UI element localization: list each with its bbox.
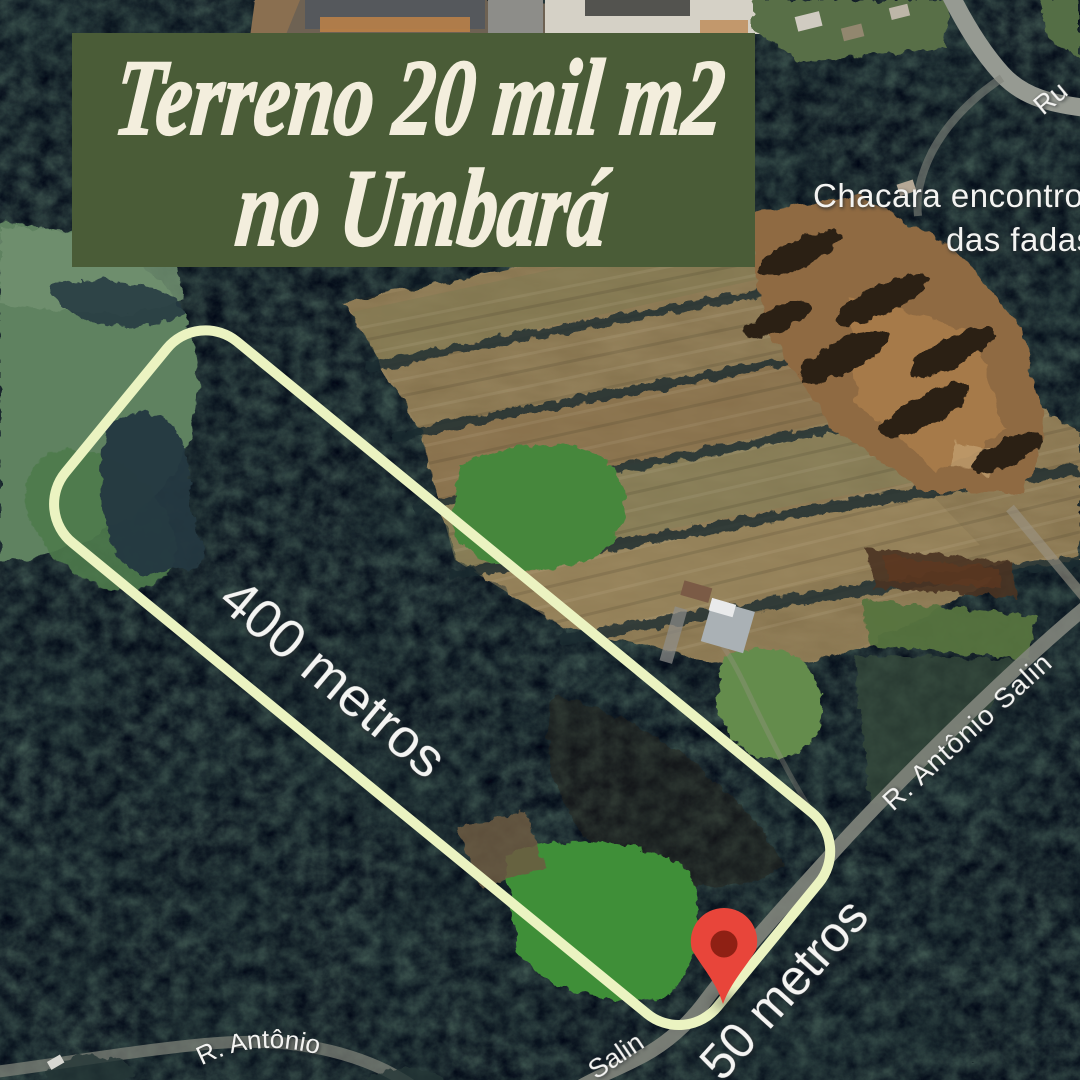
svg-text:Terreno 20 mil m2: Terreno 20 mil m2 <box>109 38 730 158</box>
svg-text:no Umbará: no Umbará <box>231 147 615 270</box>
svg-text:Chacara encontro: Chacara encontro <box>813 177 1080 214</box>
svg-text:das fadas: das fadas <box>946 221 1080 258</box>
